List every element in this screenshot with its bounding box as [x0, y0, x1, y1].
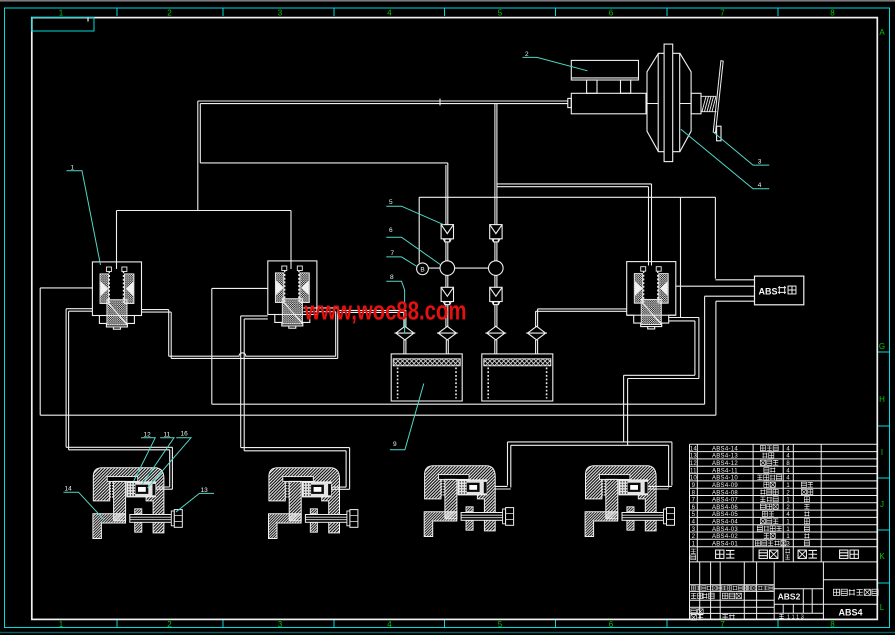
svg-text:ABS4-09: ABS4-09 — [712, 483, 738, 489]
svg-text:I: I — [881, 448, 883, 457]
svg-text:ABS4: ABS4 — [838, 608, 862, 618]
svg-text:www,woc88.com: www,woc88.com — [304, 298, 467, 326]
svg-text:5: 5 — [389, 199, 393, 206]
svg-text:ABS4-07: ABS4-07 — [712, 498, 738, 504]
svg-text:J: J — [880, 500, 884, 509]
svg-text:ABS4-03: ABS4-03 — [712, 527, 738, 533]
svg-text:6: 6 — [609, 9, 614, 18]
svg-text:5: 5 — [692, 512, 696, 518]
svg-text:1: 1 — [786, 520, 790, 526]
svg-text:ABS4-11: ABS4-11 — [712, 468, 738, 474]
svg-text:1: 1 — [786, 534, 790, 540]
svg-text:G: G — [879, 342, 885, 351]
svg-text:3: 3 — [786, 541, 790, 547]
svg-text:13: 13 — [690, 454, 698, 460]
svg-text:ABS4-12: ABS4-12 — [712, 461, 738, 467]
svg-text:ABS4-01: ABS4-01 — [712, 541, 738, 547]
svg-text:8: 8 — [830, 620, 835, 629]
svg-text:2: 2 — [167, 9, 172, 18]
svg-text:14: 14 — [65, 486, 73, 493]
svg-text:7: 7 — [720, 620, 725, 629]
svg-text:K: K — [879, 552, 885, 561]
svg-text:4: 4 — [758, 182, 762, 189]
svg-text:6: 6 — [389, 227, 393, 234]
svg-text:8: 8 — [830, 9, 835, 18]
svg-text:12: 12 — [690, 461, 698, 467]
svg-text:ABS2: ABS2 — [778, 592, 801, 602]
svg-text:2: 2 — [167, 620, 172, 629]
svg-text:4: 4 — [786, 476, 790, 482]
svg-text:14: 14 — [690, 446, 698, 452]
svg-text:16: 16 — [181, 431, 189, 438]
svg-text:2: 2 — [692, 534, 696, 540]
svg-text:6: 6 — [609, 620, 614, 629]
svg-text:1: 1 — [692, 541, 696, 547]
svg-text:6: 6 — [692, 505, 696, 511]
svg-text:ABS4-13: ABS4-13 — [712, 454, 738, 460]
svg-text:2: 2 — [525, 51, 529, 58]
svg-text:13: 13 — [201, 487, 209, 494]
svg-text:8: 8 — [786, 461, 790, 467]
svg-text:ABS4-05: ABS4-05 — [712, 512, 738, 518]
svg-text:1: 1 — [786, 527, 790, 533]
svg-text:2: 2 — [786, 505, 790, 511]
svg-text:5: 5 — [498, 620, 503, 629]
svg-text:ABS4-06: ABS4-06 — [712, 505, 738, 511]
svg-text:4: 4 — [786, 468, 790, 474]
svg-text:ABS: ABS — [759, 286, 778, 296]
svg-text:1: 1 — [59, 9, 64, 18]
svg-text:4: 4 — [786, 446, 790, 452]
svg-text:1: 1 — [786, 498, 790, 504]
svg-text:11: 11 — [690, 468, 697, 474]
svg-text:9: 9 — [692, 483, 696, 489]
svg-text:7: 7 — [692, 498, 696, 504]
svg-text:1: 1 — [59, 620, 64, 629]
svg-text:9: 9 — [393, 441, 397, 448]
svg-text:4: 4 — [692, 520, 696, 526]
svg-text:4: 4 — [387, 9, 392, 18]
svg-text:8: 8 — [390, 274, 394, 281]
svg-text:2: 2 — [786, 490, 790, 496]
svg-text:5: 5 — [498, 9, 503, 18]
svg-text:B: B — [420, 267, 424, 274]
svg-text:3: 3 — [278, 9, 283, 18]
svg-text:4: 4 — [786, 512, 790, 518]
svg-text:7: 7 — [391, 250, 395, 257]
svg-text:7: 7 — [720, 9, 725, 18]
svg-text:H: H — [879, 395, 885, 404]
svg-text:3: 3 — [758, 158, 762, 165]
svg-text:4: 4 — [387, 620, 392, 629]
svg-text:3: 3 — [278, 620, 283, 629]
svg-text:ABS4-02: ABS4-02 — [712, 534, 738, 540]
svg-text:1 1 1 3: 1 1 1 3 — [787, 615, 804, 621]
svg-text:4: 4 — [786, 454, 790, 460]
svg-text:L: L — [880, 603, 885, 612]
svg-text:ABS4-14: ABS4-14 — [712, 446, 738, 452]
svg-text:10: 10 — [690, 476, 698, 482]
svg-text:A: A — [879, 28, 885, 37]
svg-text:ABS4-08: ABS4-08 — [712, 490, 738, 496]
svg-text:8: 8 — [692, 490, 696, 496]
svg-text:ABS4-10: ABS4-10 — [712, 476, 738, 482]
svg-text:1: 1 — [786, 483, 790, 489]
svg-text:ABS4-04: ABS4-04 — [712, 520, 738, 526]
svg-text:3: 3 — [692, 527, 696, 533]
